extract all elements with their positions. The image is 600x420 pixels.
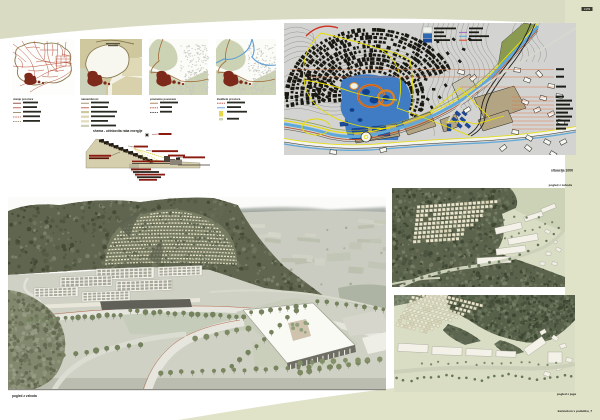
svg-text:stanje prostora: stanje prostora bbox=[13, 97, 34, 101]
svg-text:prometne povezave: prometne povezave bbox=[150, 97, 177, 101]
svg-text:kvalitete prostora: kvalitete prostora bbox=[217, 97, 241, 101]
svg-text:13/69: 13/69 bbox=[584, 7, 591, 11]
svg-text:namembnost: namembnost bbox=[81, 97, 98, 101]
svg-text:shema - učinkovita raba energi: shema - učinkovita raba energije bbox=[93, 129, 143, 133]
svg-text:situacija 1000: situacija 1000 bbox=[551, 169, 573, 173]
svg-text:pogled z zahoda: pogled z zahoda bbox=[549, 183, 573, 187]
svg-text:pogled z vzhoda: pogled z vzhoda bbox=[12, 394, 37, 398]
